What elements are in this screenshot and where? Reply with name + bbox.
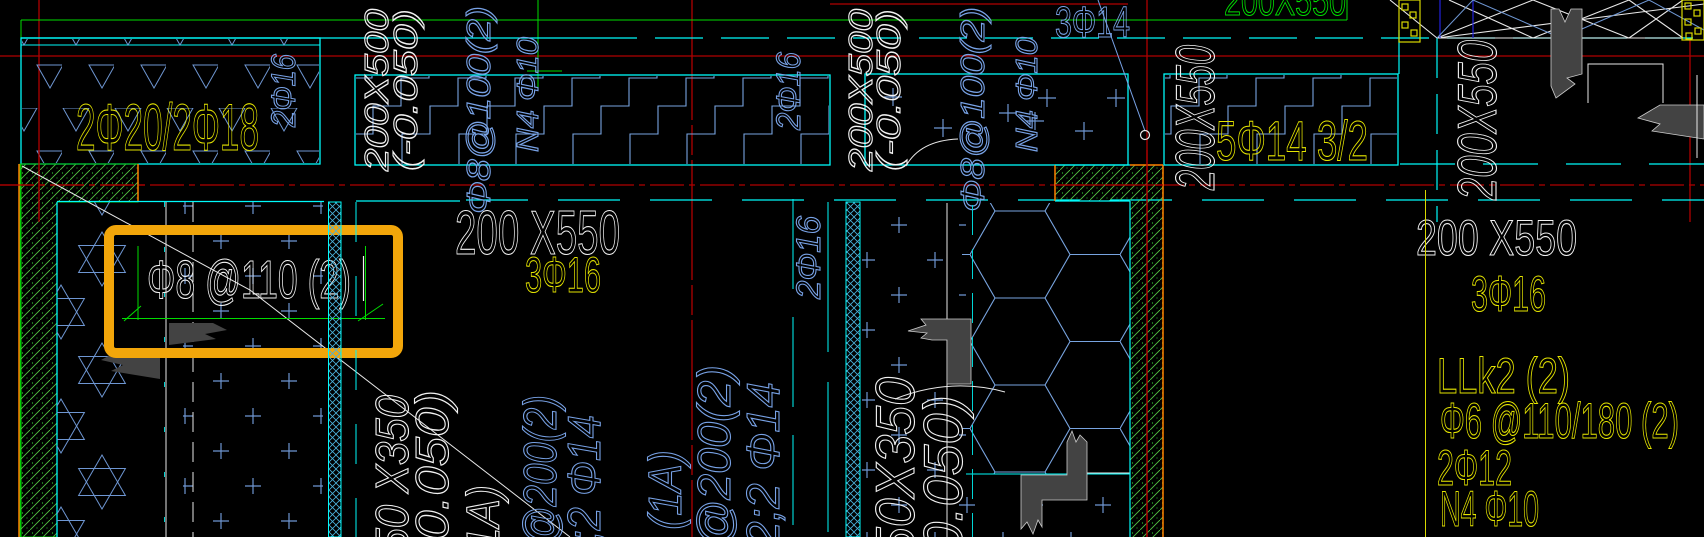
- svg-text:(1A): (1A): [457, 485, 509, 537]
- svg-text:3Φ16: 3Φ16: [1471, 266, 1546, 322]
- svg-text:N4 Φ10: N4 Φ10: [1440, 481, 1539, 537]
- svg-text:Φ8@100(2): Φ8@100(2): [954, 7, 991, 212]
- svg-text:200X550: 200X550: [1446, 40, 1508, 201]
- svg-text:2Φ16: 2Φ16: [265, 54, 303, 128]
- svg-text:2Φ20/2Φ18: 2Φ20/2Φ18: [76, 90, 259, 164]
- svg-text:2 (1A): 2 (1A): [639, 450, 691, 537]
- svg-text:200 X550: 200 X550: [1416, 210, 1577, 266]
- svg-text:200X550: 200X550: [1164, 45, 1226, 191]
- svg-text:N4 Φ10: N4 Φ10: [510, 37, 545, 152]
- svg-text:5Φ14 3/2: 5Φ14 3/2: [1216, 109, 1368, 172]
- svg-text:2Φ16: 2Φ16: [790, 216, 828, 300]
- svg-text:3Φ14: 3Φ14: [1055, 0, 1130, 47]
- svg-text:Φ12;2 Φ14: Φ12;2 Φ14: [737, 382, 789, 537]
- svg-text:N4 Φ10: N4 Φ10: [1009, 37, 1044, 152]
- svg-text:3Φ16: 3Φ16: [525, 247, 601, 303]
- svg-text:Φ8 @110 (2): Φ8 @110 (2): [147, 250, 351, 310]
- svg-text:Φ6 @200(2): Φ6 @200(2): [688, 365, 740, 537]
- svg-text:2Φ16: 2Φ16: [770, 52, 808, 131]
- svg-text:(-0.050): (-0.050): [406, 390, 458, 537]
- svg-text:(-0.050): (-0.050): [387, 9, 424, 171]
- svg-text:Φ8@100(2): Φ8@100(2): [460, 6, 497, 214]
- svg-text:(-0.050): (-0.050): [870, 9, 907, 171]
- svg-text:2;2 Φ14: 2;2 Φ14: [558, 415, 610, 537]
- svg-text:200X550: 200X550: [1224, 0, 1346, 24]
- svg-text:(-0.050): (-0.050): [912, 395, 974, 537]
